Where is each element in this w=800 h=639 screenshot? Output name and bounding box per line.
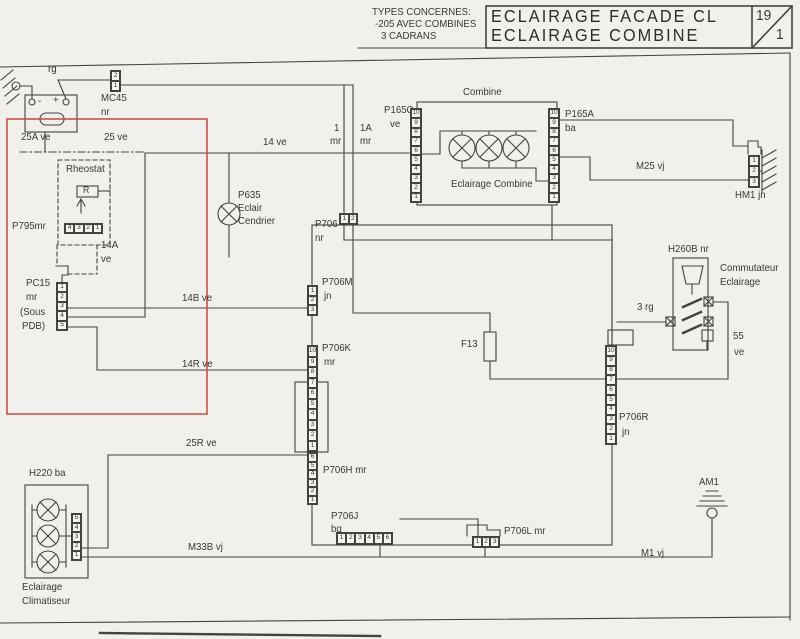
connector-pin: 4 — [65, 224, 74, 233]
wire-label-1: 1 — [334, 123, 339, 134]
page-denominator: 1 — [776, 27, 784, 43]
h220-name: H220 ba — [29, 468, 66, 479]
connector-pin: 3 — [308, 305, 317, 315]
connector-pin: 1 — [308, 496, 317, 505]
types-line1: TYPES CONCERNES: — [372, 7, 471, 18]
connector-pin: 2 — [84, 224, 93, 233]
h260b-name: H260B nr — [668, 244, 709, 255]
connector-pin: 2 — [111, 71, 120, 81]
connector-label-p165a-ba: ba — [565, 123, 576, 134]
connector-pin: 3 — [72, 532, 81, 541]
connector-pin: 2 — [346, 533, 355, 544]
wiring-diagram-page: TYPES CONCERNES: -205 AVEC COMBINES 3 CA… — [0, 0, 800, 639]
wire-label-25-ve: 25 ve — [104, 132, 128, 143]
battery-minus-sign: - — [38, 96, 41, 107]
combine-title: Combine — [463, 87, 502, 98]
connector-pin: 1 — [340, 214, 349, 224]
connector-label-p706r-jn: jn — [622, 427, 630, 438]
connector-strip-mc45: 21 — [110, 70, 121, 92]
connector-pin: 5 — [308, 462, 317, 471]
wire-label-14b-ve: 14B ve — [182, 293, 212, 304]
wire-label-25r-ve: 25R ve — [186, 438, 217, 449]
connector-label-pc15: PC15 — [26, 278, 50, 289]
connector-pin: 2 — [308, 296, 317, 306]
connector-label-p706h: P706H mr — [323, 465, 366, 476]
connector-strip-p706j: 123456 — [336, 532, 393, 545]
connector-strip-p706l: 123 — [472, 536, 500, 548]
connector-pin: 9 — [549, 118, 559, 127]
connector-pin: 1 — [111, 81, 120, 91]
connector-pin: 3 — [549, 174, 559, 183]
connector-label-p706m-jn: jn — [324, 291, 332, 302]
connector-strip-hm1: 123 — [748, 155, 760, 188]
connector-pin: 2 — [411, 183, 421, 192]
connector-pin: 7 — [308, 378, 317, 389]
page-number: 19 — [756, 8, 771, 24]
connector-pin: 10 — [606, 346, 616, 356]
connector-pin: 1 — [57, 283, 67, 292]
connector-strip-h220: 54321 — [71, 513, 82, 561]
connector-label-p706j: P706J — [331, 511, 358, 522]
connector-pin: 10 — [308, 346, 317, 357]
page-title-line1: ECLAIRAGE FACADE CL — [491, 7, 718, 25]
rheostat-r-symbol: R — [83, 186, 89, 196]
connector-pin: 2 — [549, 183, 559, 192]
p635-name: P635 — [238, 190, 261, 201]
connector-pin: 6 — [549, 146, 559, 155]
connector-pin: 4 — [308, 409, 317, 420]
connector-pin: 5 — [57, 321, 67, 330]
rheostat-label: Rheostat — [66, 164, 105, 175]
connector-pin: 1 — [749, 156, 759, 166]
ground-rail — [82, 491, 727, 557]
connector-label-mc45: MC45 — [101, 93, 127, 104]
battery-plus-sign: + — [53, 95, 59, 106]
connector-pin: 6 — [411, 146, 421, 155]
connector-pin: 1 — [72, 551, 81, 560]
climate-lamps-box — [25, 455, 307, 578]
connector-label-p795mr: P795mr — [12, 221, 46, 232]
connector-strip-p706: 12 — [339, 213, 358, 225]
connector-label-p706: P706 — [315, 219, 338, 230]
connector-pin: 4 — [411, 165, 421, 174]
connector-pin: 7 — [549, 137, 559, 146]
wire-label-55: 55 — [733, 331, 744, 342]
connector-pin: 3 — [355, 533, 364, 544]
connector-strip-p165c: 10987654321 — [410, 108, 422, 203]
connector-label-p165a: P165A — [565, 109, 594, 120]
fuse-label-f13: F13 — [461, 339, 478, 350]
wire-label-14a: 14A — [101, 240, 118, 251]
connector-pin: 4 — [308, 470, 317, 479]
connector-pin: 7 — [606, 375, 616, 385]
connector-pin: 8 — [411, 128, 421, 137]
connector-label-p706m: P706M — [322, 277, 353, 288]
types-line3: 3 CADRANS — [381, 31, 436, 42]
connector-pin: 4 — [606, 405, 616, 415]
connector-pin: 3 — [411, 174, 421, 183]
connector-pin: 3 — [749, 177, 759, 187]
central-box — [295, 205, 728, 557]
connector-pin: 9 — [308, 357, 317, 368]
hm1-ground — [560, 120, 776, 192]
connector-label-mc45-nr: nr — [101, 107, 110, 118]
wire-label-14r-ve: 14R ve — [182, 359, 213, 370]
connector-pin: 2 — [308, 430, 317, 441]
connector-pin: 1 — [308, 441, 317, 452]
connector-pin: 1 — [411, 193, 421, 202]
light-switch-symbol — [666, 258, 713, 350]
connector-pin: 2 — [72, 542, 81, 551]
connector-pin: 8 — [308, 367, 317, 378]
connector-strip-p706r: 10987654321 — [605, 345, 617, 445]
connector-pin: 10 — [411, 109, 421, 118]
connector-pin: 6 — [308, 453, 317, 462]
connector-label-pc15-pdb: PDB) — [22, 321, 45, 332]
wire-label-m25-vj: M25 vj — [636, 161, 664, 172]
connector-pin: 3 — [606, 415, 616, 425]
connector-pin: 10 — [549, 109, 559, 118]
connector-pin: 2 — [57, 292, 67, 301]
wire-label-25a-ve: 25A ve — [21, 132, 51, 143]
wire-label-14a-ve: ve — [101, 254, 111, 265]
types-line2: -205 AVEC COMBINES — [375, 19, 476, 30]
connector-pin: 5 — [411, 155, 421, 164]
wire-label-55-ve: ve — [734, 347, 744, 358]
connector-pin: 5 — [549, 155, 559, 164]
connector-pin: 4 — [549, 165, 559, 174]
connector-pin: 2 — [606, 424, 616, 434]
connector-label-pc15-mr: mr — [26, 292, 37, 303]
connector-pin: 1 — [308, 286, 317, 296]
connector-pin: 1 — [337, 533, 346, 544]
switch-desc2: Eclairage — [720, 277, 760, 288]
connector-pin: 2 — [749, 166, 759, 176]
connector-pin: 9 — [606, 356, 616, 366]
page-title-line2: ECLAIRAGE COMBINE — [491, 26, 699, 44]
connector-pin: 6 — [383, 533, 392, 544]
connector-pin: 1 — [93, 224, 102, 233]
connector-pin: 3 — [57, 302, 67, 311]
connector-strip-p706k: 10987654321 — [307, 345, 318, 452]
wire-label-m1-vj: M1 vj — [641, 548, 664, 559]
connector-pin: 1 — [473, 537, 482, 547]
connector-label-p706k-mr: mr — [324, 357, 335, 368]
connector-pin: 4 — [72, 523, 81, 532]
connector-strip-p706m: 123 — [307, 285, 318, 316]
connector-pin: 3 — [74, 224, 83, 233]
connector-pin: 1 — [606, 434, 616, 444]
wire-label-14-ve: 14 ve — [263, 137, 287, 148]
wire-label-m33b-vj: M33B vj — [188, 542, 223, 553]
connector-label-p706r: P706R — [619, 412, 649, 423]
connector-strip-p165a: 10987654321 — [548, 108, 560, 203]
fuse-f13-symbol — [484, 332, 496, 361]
wire-label-3-rg: 3 rg — [637, 302, 654, 313]
p635-line2: Eclair — [238, 203, 262, 214]
connector-pin: 3 — [490, 537, 499, 547]
connector-label-p706k: P706K — [322, 343, 351, 354]
connector-pin: 2 — [308, 487, 317, 496]
connector-pin: 2 — [482, 537, 491, 547]
connector-pin: 5 — [308, 399, 317, 410]
wire-label-1a: 1A — [360, 123, 372, 134]
wire-label-1-mr: mr — [330, 136, 341, 147]
switch-desc1: Commutateur — [720, 263, 779, 274]
connector-pin: 2 — [349, 214, 358, 224]
connector-pin: 3 — [308, 479, 317, 488]
connector-pin: 8 — [606, 366, 616, 376]
connector-strip-pc15: 12345 — [56, 282, 68, 331]
connector-label-p165c-ve: ve — [390, 119, 400, 130]
h220-desc1: Eclairage — [22, 582, 62, 593]
ashtray-lamp-symbol — [218, 153, 240, 257]
connector-pin: 4 — [365, 533, 374, 544]
connector-pin: 7 — [411, 137, 421, 146]
connector-label-hm1: HM1 jn — [735, 190, 766, 201]
connector-label-p706-nr: nr — [315, 233, 324, 244]
connector-strip-p706h: 654321 — [307, 452, 318, 505]
combine-caption: Eclairage Combine — [451, 179, 533, 190]
connector-pin: 6 — [606, 385, 616, 395]
connector-pin: 9 — [411, 118, 421, 127]
connector-pin: 5 — [374, 533, 383, 544]
connector-label-p706l: P706L mr — [504, 526, 546, 537]
connector-pin: 8 — [549, 128, 559, 137]
connector-label-pc15-sous: (Sous — [20, 307, 45, 318]
wire-label-rg: rg — [48, 64, 57, 75]
connector-pin: 3 — [308, 420, 317, 431]
wire-label-1a-mr: mr — [360, 136, 371, 147]
connector-pin: 6 — [308, 388, 317, 399]
h220-desc2: Climatiseur — [22, 596, 70, 607]
connector-pin: 4 — [57, 311, 67, 320]
connector-pin: 1 — [549, 193, 559, 202]
ground-label-am1: AM1 — [699, 477, 719, 488]
connector-pin: 5 — [72, 514, 81, 523]
connector-pin: 5 — [606, 395, 616, 405]
p635-line3: Cendrier — [238, 216, 275, 227]
connector-strip-p795: 4321 — [64, 223, 103, 234]
